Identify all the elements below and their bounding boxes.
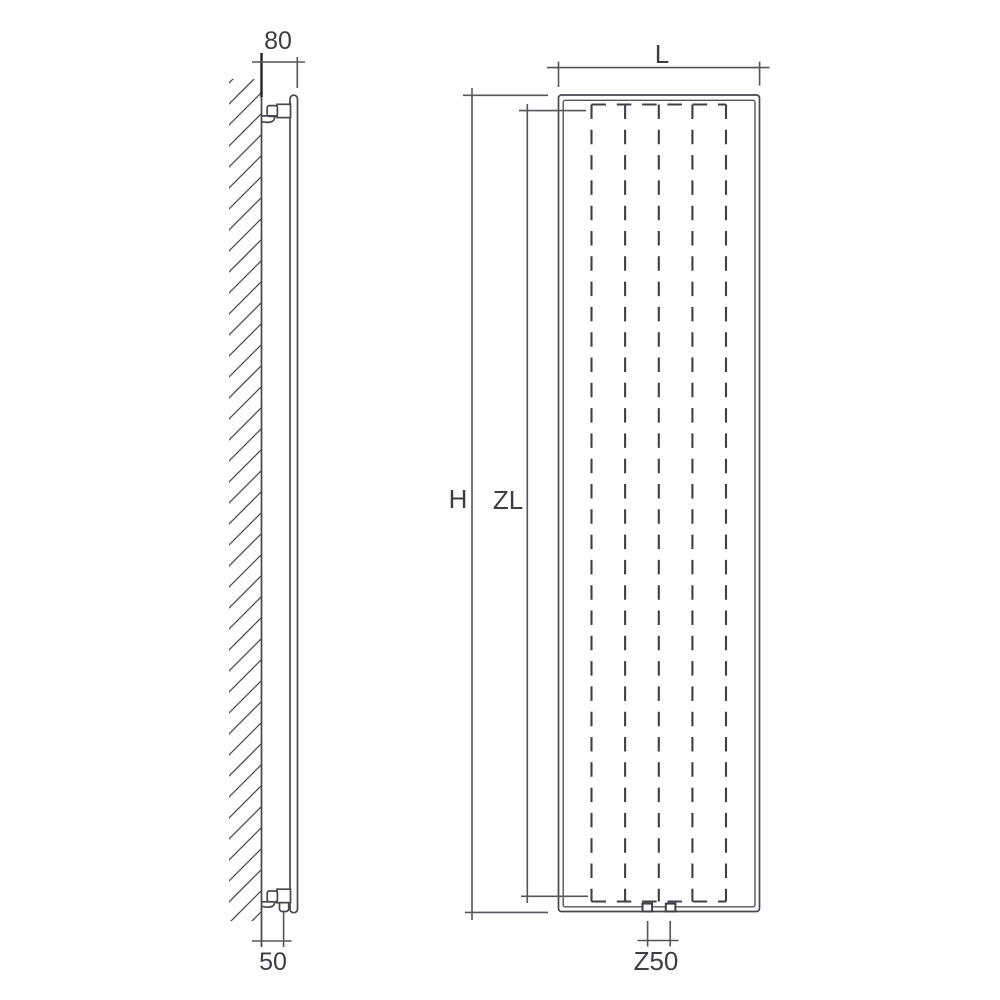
svg-text:50: 50	[259, 948, 287, 976]
svg-text:80: 80	[264, 27, 292, 55]
svg-text:ZL: ZL	[493, 485, 523, 515]
svg-text:L: L	[655, 39, 669, 69]
svg-text:Z50: Z50	[634, 946, 679, 976]
svg-text:H: H	[449, 484, 468, 514]
